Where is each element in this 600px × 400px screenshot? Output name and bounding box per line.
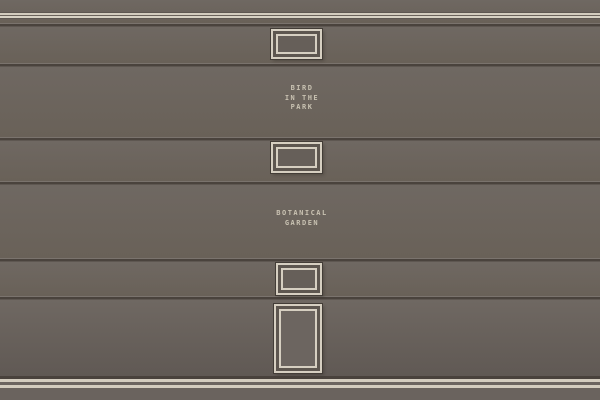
plaque-line: BIRD bbox=[222, 84, 382, 94]
tall-frame-bottom[interactable] bbox=[274, 304, 322, 373]
small-frame-top[interactable] bbox=[271, 29, 322, 59]
small-frame-middle-canvas bbox=[276, 147, 317, 168]
tall-frame-bottom-canvas bbox=[279, 309, 317, 368]
plaque-line: GARDEN bbox=[222, 219, 382, 229]
crown-trim-underline bbox=[0, 18, 600, 19]
small-frame-lower[interactable] bbox=[276, 263, 322, 295]
small-frame-middle[interactable] bbox=[271, 142, 322, 173]
plaque-line: PARK bbox=[222, 103, 382, 113]
baseboard-bottom bbox=[0, 388, 600, 400]
crown-trim-line-1 bbox=[0, 13, 600, 15]
plaque-line: IN THE bbox=[222, 94, 382, 104]
gallery-wall-scene: BIRD IN THE PARK BOTANICAL GARDEN bbox=[0, 0, 600, 400]
small-frame-top-canvas bbox=[276, 34, 317, 54]
plaque-botanical-garden: BOTANICAL GARDEN bbox=[222, 209, 382, 228]
plaque-bird-in-the-park: BIRD IN THE PARK bbox=[222, 84, 382, 113]
plaque-line: BOTANICAL bbox=[222, 209, 382, 219]
small-frame-lower-canvas bbox=[281, 268, 317, 290]
